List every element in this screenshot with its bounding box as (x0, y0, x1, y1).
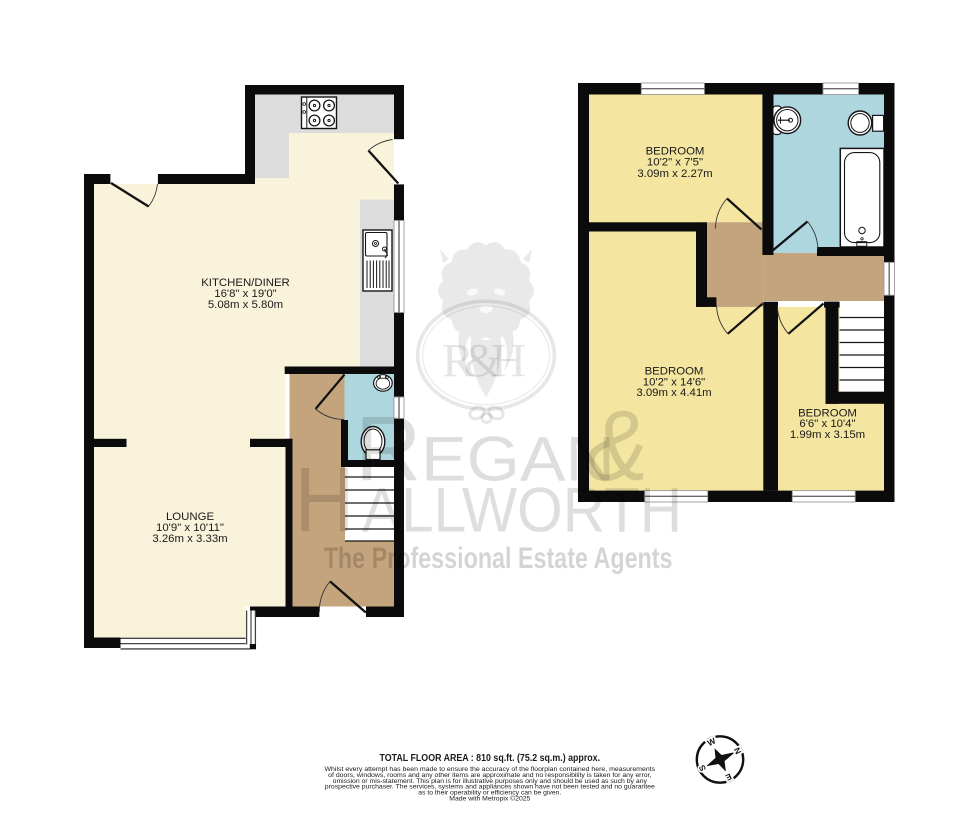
svg-text:1.99m x 3.15m: 1.99m x 3.15m (790, 429, 865, 441)
svg-text:ALLWORTH: ALLWORTH (362, 475, 682, 545)
svg-text:The Professional Estate Agents: The Professional Estate Agents (324, 541, 673, 575)
svg-text:TOTAL FLOOR AREA : 810 sq.ft.: TOTAL FLOOR AREA : 810 sq.ft. (75.2 sq.m… (380, 753, 601, 764)
svg-text:R&H: R&H (442, 335, 526, 388)
svg-text:3.26m x 3.33m: 3.26m x 3.33m (152, 533, 227, 545)
svg-text:Made with Metropix ©2025: Made with Metropix ©2025 (449, 794, 530, 802)
svg-text:5.08m x 5.80m: 5.08m x 5.80m (208, 299, 283, 311)
svg-text:H: H (295, 450, 355, 552)
svg-text:10'2" x 7'5": 10'2" x 7'5" (647, 157, 703, 169)
svg-text:3.09m x 2.27m: 3.09m x 2.27m (637, 168, 712, 180)
